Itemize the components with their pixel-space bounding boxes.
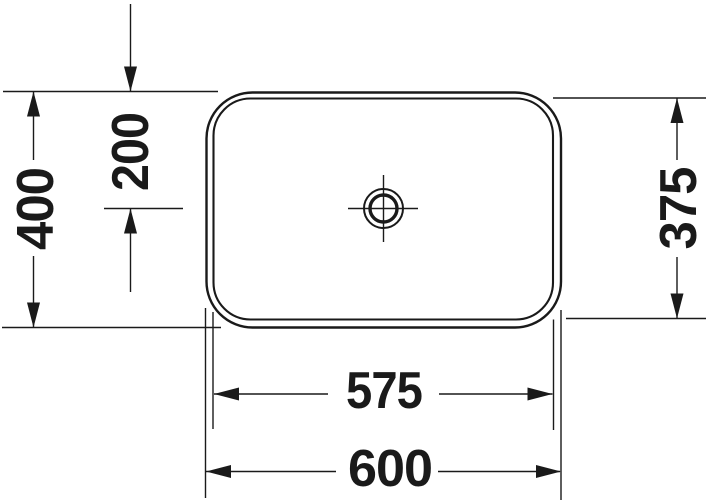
dimension-inner-depth: 375 — [553, 98, 708, 319]
arrow-left-icon — [214, 388, 239, 401]
arrow-up-icon — [124, 209, 137, 234]
arrow-up-icon — [671, 98, 684, 123]
arrow-down-icon — [671, 294, 684, 319]
dim-label-overall-depth: 400 — [7, 168, 65, 250]
arrow-left-icon — [206, 465, 231, 478]
dimension-drain-offset: 200 — [102, 4, 183, 292]
dim-label-inner-width: 575 — [346, 362, 422, 420]
drain-outlet — [348, 175, 418, 242]
dimension-inner-width: 575 — [213, 312, 554, 430]
arrow-down-icon — [27, 303, 40, 328]
washbasin-plan-view-drawing: 400 200 375 575 — [0, 0, 709, 501]
technical-drawing-canvas: 400 200 375 575 — [0, 0, 709, 501]
arrow-right-icon — [536, 465, 561, 478]
dim-label-inner-depth: 375 — [650, 167, 708, 249]
arrow-down-icon — [124, 67, 137, 92]
dim-label-drain-offset: 200 — [102, 113, 160, 191]
arrow-right-icon — [528, 388, 553, 401]
arrow-up-icon — [27, 92, 40, 117]
dim-label-overall-width: 600 — [348, 440, 432, 498]
